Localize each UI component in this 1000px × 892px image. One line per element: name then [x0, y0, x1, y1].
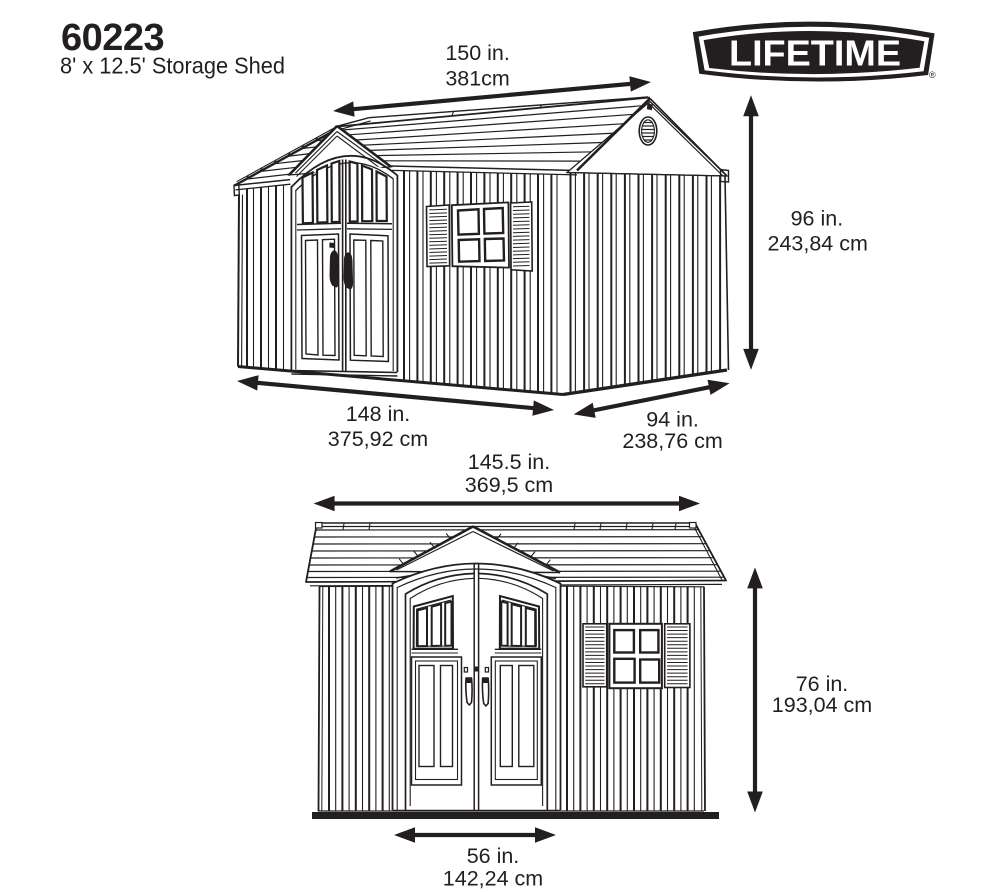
svg-text:8' x 12.5' Storage Shed: 8' x 12.5' Storage Shed — [60, 53, 285, 79]
svg-text:®: ® — [929, 70, 936, 80]
svg-text:142,24 cm: 142,24 cm — [443, 867, 543, 891]
svg-text:LIFETIME: LIFETIME — [729, 33, 901, 74]
svg-text:96 in.: 96 in. — [791, 207, 844, 231]
svg-text:193,04 cm: 193,04 cm — [772, 693, 872, 717]
svg-text:243,84 cm: 243,84 cm — [767, 232, 867, 256]
svg-text:375,92 cm: 375,92 cm — [328, 427, 428, 451]
svg-text:145.5 in.: 145.5 in. — [468, 450, 550, 474]
svg-text:56 in.: 56 in. — [467, 844, 520, 868]
svg-text:238,76 cm: 238,76 cm — [622, 429, 722, 453]
svg-text:148 in.: 148 in. — [346, 402, 411, 426]
svg-text:94 in.: 94 in. — [646, 407, 699, 431]
svg-text:150 in.: 150 in. — [445, 41, 510, 65]
svg-text:369,5 cm: 369,5 cm — [465, 473, 553, 497]
svg-text:381cm: 381cm — [445, 67, 510, 91]
